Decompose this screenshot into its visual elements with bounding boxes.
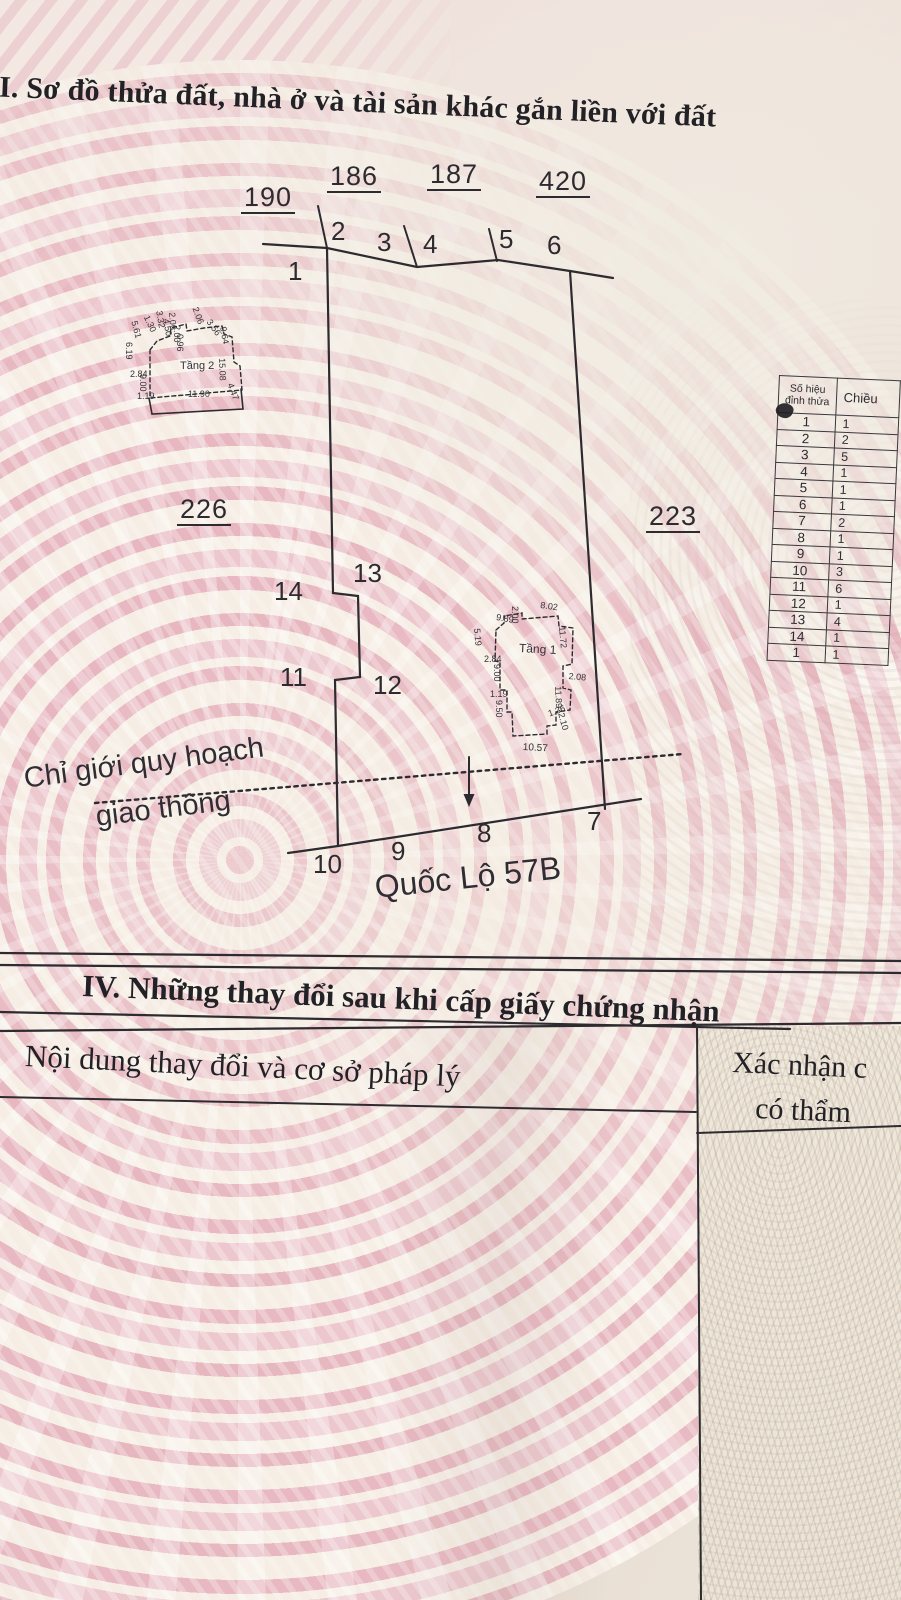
vertex-label-11: 11 bbox=[280, 662, 307, 693]
vertex-label-6: 6 bbox=[547, 230, 561, 261]
vertex-label-4: 4 bbox=[423, 229, 437, 260]
dim-t2-11: 0.96 bbox=[175, 334, 184, 352]
building-t2-label: Tầng 2 bbox=[180, 360, 214, 372]
changes-table-top-border bbox=[0, 1023, 901, 1031]
changes-col2-header-line2: có thẩm bbox=[755, 1092, 852, 1130]
vertex-label-7: 7 bbox=[587, 806, 601, 837]
rule-top-1 bbox=[0, 953, 901, 961]
dim-t1-4: 2.84 bbox=[484, 655, 502, 664]
vertex-label-1: 1 bbox=[288, 256, 302, 287]
parcel-label-186: 186 bbox=[327, 162, 381, 193]
dim-t1-13: 10.57 bbox=[522, 743, 548, 754]
parcel-label-187: 187 bbox=[427, 160, 481, 191]
parcel-label-223: 223 bbox=[646, 502, 700, 533]
dim-t1-3: 5.19 bbox=[472, 628, 482, 646]
dim-t2-1: 11.90 bbox=[188, 390, 210, 399]
dim-t1-8: 11.72 bbox=[557, 626, 568, 649]
vertex-label-3: 3 bbox=[377, 227, 391, 258]
dim-t1-5: 9.00 bbox=[492, 664, 501, 682]
dim-t2-4: 6.19 bbox=[124, 342, 133, 360]
tick-vertex-5 bbox=[489, 229, 497, 261]
changes-col2-header-line1: Xác nhận c bbox=[732, 1046, 868, 1086]
parcel-label-226: 226 bbox=[177, 495, 231, 526]
vertex-label-2: 2 bbox=[331, 216, 345, 247]
changes-table-divider bbox=[697, 1026, 701, 1600]
building-t1-label: Tầng 1 bbox=[519, 641, 557, 657]
vertex-id: 1 bbox=[767, 643, 825, 662]
vertex-length-table: Số hiệu đỉnh thửa Chiều 11 22 35 41 51 6… bbox=[767, 375, 901, 666]
vertex-label-10: 10 bbox=[313, 849, 342, 880]
plot-right-boundary bbox=[570, 271, 605, 809]
vertex-label-12: 12 bbox=[373, 670, 402, 701]
dim-t1-9: 2.08 bbox=[568, 672, 586, 682]
tick-vertex-2 bbox=[318, 206, 327, 248]
parcel-label-190: 190 bbox=[241, 183, 295, 214]
dim-t1-7: 9.50 bbox=[494, 700, 503, 718]
vertex-label-5: 5 bbox=[499, 224, 513, 255]
dim-t2-3: 9.00 bbox=[138, 374, 147, 392]
dim-t2-14: 9.64 bbox=[218, 326, 230, 345]
vertex-table-col2-header: Chiều bbox=[835, 378, 900, 418]
vertex-label-9: 9 bbox=[391, 836, 405, 867]
dim-t1-6: 1.19 bbox=[490, 690, 508, 699]
dim-t2-15: 15.08 bbox=[217, 358, 227, 381]
changes-col1-bottom-border bbox=[0, 1097, 696, 1112]
parcel-label-420: 420 bbox=[536, 167, 590, 198]
dim-t2-0: 1.19 bbox=[137, 392, 155, 401]
vertex-label-8: 8 bbox=[477, 818, 491, 849]
vertex-label-14: 14 bbox=[274, 576, 303, 607]
plot-left-boundary bbox=[327, 248, 360, 846]
vertex-label-13: 13 bbox=[353, 558, 382, 589]
certificate-page: II. Sơ đồ thửa đất, nhà ở và tài sản khá… bbox=[0, 0, 901, 1600]
vertex-length: 1 bbox=[825, 646, 889, 665]
tick-vertex-3-4 bbox=[404, 226, 417, 267]
arrow-head-icon bbox=[464, 794, 475, 807]
